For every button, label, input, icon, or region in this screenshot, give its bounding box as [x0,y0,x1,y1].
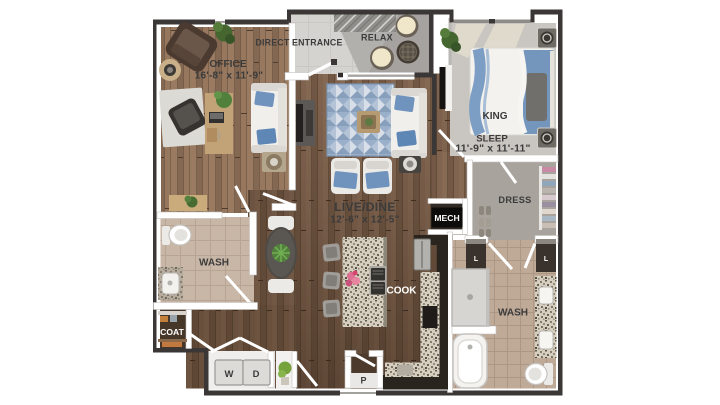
svg-text:L: L [544,256,549,263]
svg-text:LIVE/DINE: LIVE/DINE [334,200,395,214]
svg-text:COOK: COOK [387,286,418,297]
svg-text:COAT: COAT [160,327,184,337]
svg-text:DRESS: DRESS [498,195,531,205]
svg-text:11'-9" x 11'-11": 11'-9" x 11'-11" [455,144,530,155]
svg-text:KING: KING [483,111,508,122]
svg-text:D: D [253,369,260,380]
svg-text:WASH: WASH [199,258,229,269]
svg-text:OFFICE: OFFICE [209,59,247,70]
svg-text:L: L [474,256,479,263]
svg-text:P: P [360,376,366,386]
svg-text:16'-8" x 11'-9": 16'-8" x 11'-9" [195,71,264,82]
svg-text:WASH: WASH [498,308,528,319]
svg-text:RELAX: RELAX [361,33,393,43]
svg-text:DIRECT ENTRANCE: DIRECT ENTRANCE [255,38,342,48]
svg-text:MECH: MECH [434,213,459,223]
svg-text:W: W [225,369,234,380]
svg-text:12'-6" x 12'-5": 12'-6" x 12'-5" [330,215,399,226]
